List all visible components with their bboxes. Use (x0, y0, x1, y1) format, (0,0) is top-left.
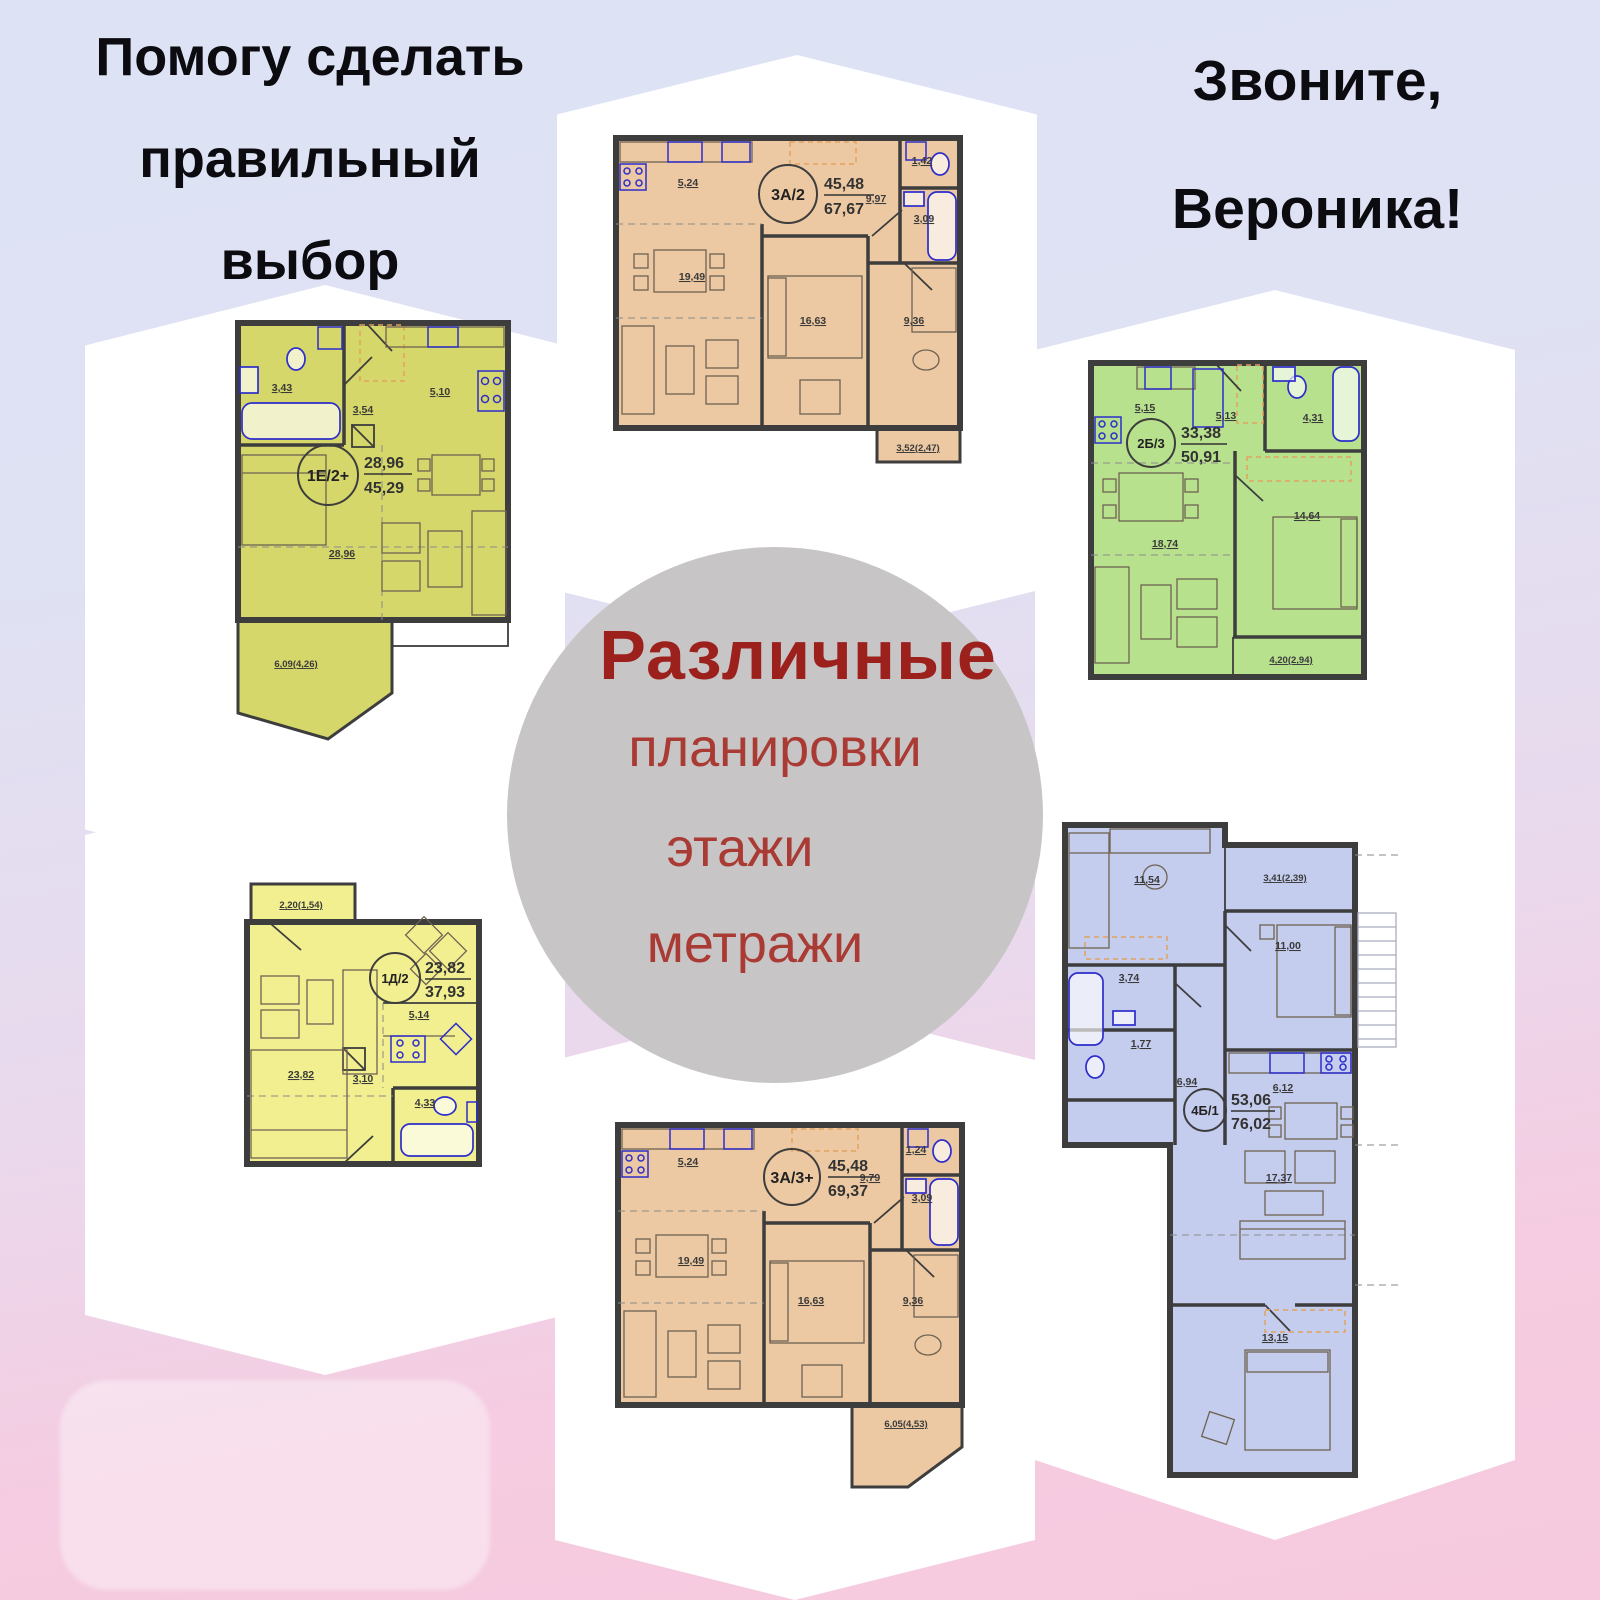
badge-item-planirovki: планировки (507, 717, 1043, 779)
plan-code: 3А/3+ (770, 1170, 813, 1187)
bathtub (242, 403, 340, 439)
floorplan-4b-1: 11,54 3,41(2,39) 11,00 3,74 1,77 6,94 6,… (1055, 815, 1400, 1487)
sink (1113, 1011, 1135, 1025)
room-area-label: 5,24 (678, 177, 699, 189)
room-area-label: 14,64 (1294, 510, 1320, 522)
headline-right-line1: Звоните, (1095, 48, 1540, 114)
headline-right-line2: Вероника! (1095, 176, 1540, 242)
floorplan-2b-3-drawing: 5,15 5,13 4,31 18,74 14,64 4,20(2,94) 2Б… (1091, 363, 1364, 677)
room-area-label: 9,36 (903, 1295, 924, 1307)
room-area-label: 16,63 (798, 1295, 824, 1307)
floorplan-3a-3plus-drawing: 5,24 1,24 9,79 3,09 19,49 16,63 9,36 6,0… (618, 1125, 962, 1487)
plan-area-total: 76,02 (1231, 1116, 1271, 1133)
bathtub (401, 1124, 473, 1156)
floorplan-1d-2: 2,20(1,54) 23,82 5,14 3,10 4,33 1Д/2 23,… (243, 878, 483, 1170)
toilet (434, 1097, 456, 1115)
room-area-label: 5,13 (1216, 410, 1237, 422)
room-area-label: 4,20(2,94) (1269, 655, 1312, 666)
floorplan-3a-2-drawing: 5,24 1,42 9,97 3,09 19,49 16,63 9,36 3,5… (616, 138, 960, 462)
sink (1273, 367, 1295, 381)
badge-item-metrazhi: метражи (467, 913, 1043, 975)
room-area-label: 5,10 (430, 386, 451, 398)
room-area-label: 5,14 (409, 1009, 430, 1021)
room-area-label: 11,54 (1134, 874, 1160, 886)
bathtub (930, 1179, 958, 1245)
room-area-label: 3,54 (353, 404, 374, 416)
room-area-label: 3,09 (912, 1192, 933, 1204)
plan-code: 2Б/3 (1137, 436, 1164, 451)
room-area-label: 6,94 (1177, 1076, 1198, 1088)
plan-area-total: 50,91 (1181, 449, 1221, 466)
room-area-label: 19,49 (679, 271, 705, 283)
plan-area-total: 67,67 (824, 201, 864, 218)
room-area-label: 1,24 (906, 1144, 927, 1156)
room-area-label: 23,82 (288, 1069, 314, 1081)
floorplan-1d-2-drawing: 2,20(1,54) 23,82 5,14 3,10 4,33 1Д/2 23,… (247, 884, 479, 1164)
room-area-label: 28,96 (329, 548, 355, 560)
room-area-label: 2,20(1,54) (279, 900, 322, 911)
plan-area-total: 37,93 (425, 984, 465, 1001)
decorative-blob (60, 1380, 490, 1590)
plan-area-living: 45,48 (828, 1158, 868, 1175)
sink (904, 192, 924, 206)
toilet (1086, 1056, 1104, 1078)
room-area-label: 19,49 (678, 1255, 704, 1267)
badge-item-etazhi: этажи (437, 817, 1043, 879)
room-area-label: 4,31 (1303, 412, 1324, 424)
plan-area-living: 53,06 (1231, 1092, 1271, 1109)
headline-left: Помогу сделать правильный выбор (60, 26, 560, 332)
room-area-label: 3,52(2,47) (896, 443, 939, 454)
bathtub (1333, 367, 1359, 441)
floorplan-4b-1-drawing: 11,54 3,41(2,39) 11,00 3,74 1,77 6,94 6,… (1065, 825, 1398, 1475)
headline-left-line2: правильный (60, 128, 560, 190)
toilet (287, 348, 305, 370)
plan-area-living: 23,82 (425, 960, 465, 977)
stairs (1358, 913, 1396, 1047)
room-area-label: 6,09(4,26) (274, 659, 317, 670)
headline-left-line1: Помогу сделать (60, 26, 560, 88)
floorplan-3a-3plus: 5,24 1,24 9,79 3,09 19,49 16,63 9,36 6,0… (612, 1115, 968, 1510)
plan-code: 4Б/1 (1191, 1103, 1218, 1118)
room-area-label: 13,15 (1262, 1332, 1288, 1344)
floorplan-2b-3: 5,15 5,13 4,31 18,74 14,64 4,20(2,94) 2Б… (1085, 355, 1370, 685)
room-area-label: 3,10 (353, 1073, 374, 1085)
plan-code: 3А/2 (771, 187, 805, 204)
room-area-label: 17,37 (1266, 1172, 1292, 1184)
room-area-label: 4,33 (415, 1097, 436, 1109)
plan-area-living: 45,48 (824, 176, 864, 193)
room-area-label: 5,24 (678, 1156, 699, 1168)
room-area-label: 3,74 (1119, 972, 1140, 984)
plan-area-total: 69,37 (828, 1183, 868, 1200)
room-area-label: 11,00 (1275, 940, 1301, 952)
sink (906, 1179, 926, 1193)
plan-area-living: 33,38 (1181, 425, 1221, 442)
toilet (931, 153, 949, 175)
room-area-label: 6,05(4,53) (884, 1419, 927, 1430)
headline-left-line3: выбор (60, 230, 560, 292)
room-area-label: 9,36 (904, 315, 925, 327)
room-area-label: 1,42 (912, 155, 933, 167)
room-area-label: 3,43 (272, 382, 293, 394)
floorplan-3a-2: 5,24 1,42 9,97 3,09 19,49 16,63 9,36 3,5… (610, 128, 966, 470)
sink (240, 367, 258, 393)
floorplan-1e-2plus: 3,43 3,54 5,10 28,96 6,09(4,26) 1Е/2+ 28… (232, 315, 514, 760)
room-area-label: 16,63 (800, 315, 826, 327)
bathtub (1069, 973, 1103, 1045)
plan-area-total: 45,29 (364, 480, 404, 497)
plan-code: 1Е/2+ (307, 468, 349, 485)
plan-area-living: 28,96 (364, 455, 404, 472)
headline-right: Звоните, Вероника! (1095, 48, 1540, 304)
bathtub (928, 192, 956, 260)
room-area-label: 3,09 (914, 213, 935, 225)
room-area-label: 1,77 (1131, 1038, 1152, 1050)
center-badge: Различные планировки этажи метражи (507, 547, 1043, 1083)
toilet (933, 1140, 951, 1162)
plan-code: 1Д/2 (381, 971, 408, 986)
room-area-label: 18,74 (1152, 538, 1178, 550)
room-area-label: 6,12 (1273, 1082, 1294, 1094)
badge-title: Различные (553, 615, 1043, 695)
promo-poster: Помогу сделать правильный выбор Звоните,… (0, 0, 1600, 1600)
room-area-label: 5,15 (1135, 402, 1156, 414)
room-area-label: 3,41(2,39) (1263, 873, 1306, 884)
floorplan-1e-2plus-drawing: 3,43 3,54 5,10 28,96 6,09(4,26) 1Е/2+ 28… (238, 323, 508, 739)
